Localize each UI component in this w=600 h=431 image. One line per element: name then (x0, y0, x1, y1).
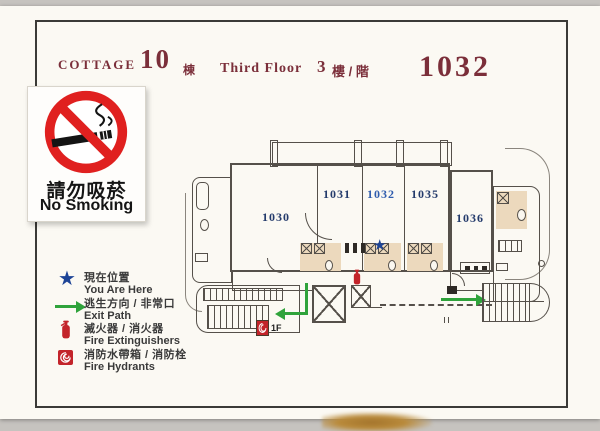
legend-exit-path-zh: 逃生方向 / 非常口 (84, 299, 175, 310)
elevator-shaft (312, 285, 346, 323)
room-label-1031: 1031 (320, 187, 354, 202)
door-marker (447, 286, 457, 294)
shower-box (497, 192, 509, 204)
legend-you-are-here-zh: 現在位置 (84, 273, 130, 284)
cabinet (195, 253, 208, 262)
utility-box (460, 262, 490, 274)
cottage-suffix-cjk: 棟 (183, 61, 195, 78)
floor-plan: 1030 1031 1032 1035 1036 ★ (183, 133, 568, 348)
legend-hydrant-en: Fire Hydrants (84, 361, 155, 373)
floor-marker-1f: 1F (271, 323, 282, 333)
legend-extinguisher-en: Fire Extinguishers (84, 335, 180, 347)
door-post (345, 243, 349, 253)
toilet (430, 260, 438, 271)
door-post (353, 243, 357, 253)
fire-extinguisher-marker (352, 269, 362, 285)
no-smoking-sign: 請勿吸菸 No Smoking (27, 86, 146, 222)
steps (498, 240, 522, 252)
stair-flight (203, 288, 283, 301)
room-label-1036: 1036 (453, 211, 487, 226)
photo-stain (322, 412, 432, 431)
room-divider (362, 163, 363, 272)
stair-return-cap (528, 283, 550, 322)
toilet (200, 219, 209, 231)
shower-box (301, 243, 312, 254)
cottage-label: COTTAGE (58, 57, 136, 73)
room-label-1030: 1030 (259, 210, 293, 225)
legend-you-are-here-en: You Are Here (84, 284, 152, 296)
wall-segment (371, 307, 382, 308)
room-label-1035: 1035 (408, 187, 442, 202)
you-are-here-star-marker: ★ (373, 236, 386, 254)
cabinet (496, 263, 508, 271)
legend-exit-path-en: Exit Path (84, 310, 131, 322)
fire-extinguisher-icon (60, 320, 72, 339)
toilet (388, 260, 396, 271)
tick-mark (444, 317, 445, 323)
fire-hydrant-marker (256, 320, 269, 336)
room-label-1032-current: 1032 (364, 187, 398, 202)
current-room-number: 1032 (419, 50, 491, 84)
you-are-here-star-icon: ★ (55, 266, 79, 291)
cottage-number: 10 (140, 44, 171, 75)
shower-box (408, 243, 419, 254)
photo-background: { "header": { "cottage_label": "COTTAGE"… (0, 0, 600, 431)
fire-hydrant-icon (58, 350, 73, 365)
toilet (325, 260, 333, 271)
no-smoking-icon (36, 88, 136, 176)
floor-suffix-cjk: 樓 / 階 (332, 61, 369, 80)
door-post (361, 243, 365, 253)
floor-number: 3 (317, 57, 326, 77)
stair-landing-line (482, 301, 544, 302)
floor-label-en: Third Floor (220, 61, 302, 77)
bathtub (196, 182, 209, 210)
shower-box (421, 243, 432, 254)
room-divider (404, 163, 405, 272)
toilet (517, 209, 526, 221)
legend-extinguisher-zh: 滅火器 / 消火器 (84, 324, 164, 335)
right-staircase (482, 283, 530, 322)
tick-mark (448, 317, 449, 323)
service-shaft (351, 285, 371, 308)
no-smoking-text-en: No Smoking (28, 197, 145, 215)
door-arc (452, 273, 465, 286)
legend-hydrant-zh: 消防水帶箱 / 消防栓 (84, 350, 187, 361)
shower-box (314, 243, 325, 254)
